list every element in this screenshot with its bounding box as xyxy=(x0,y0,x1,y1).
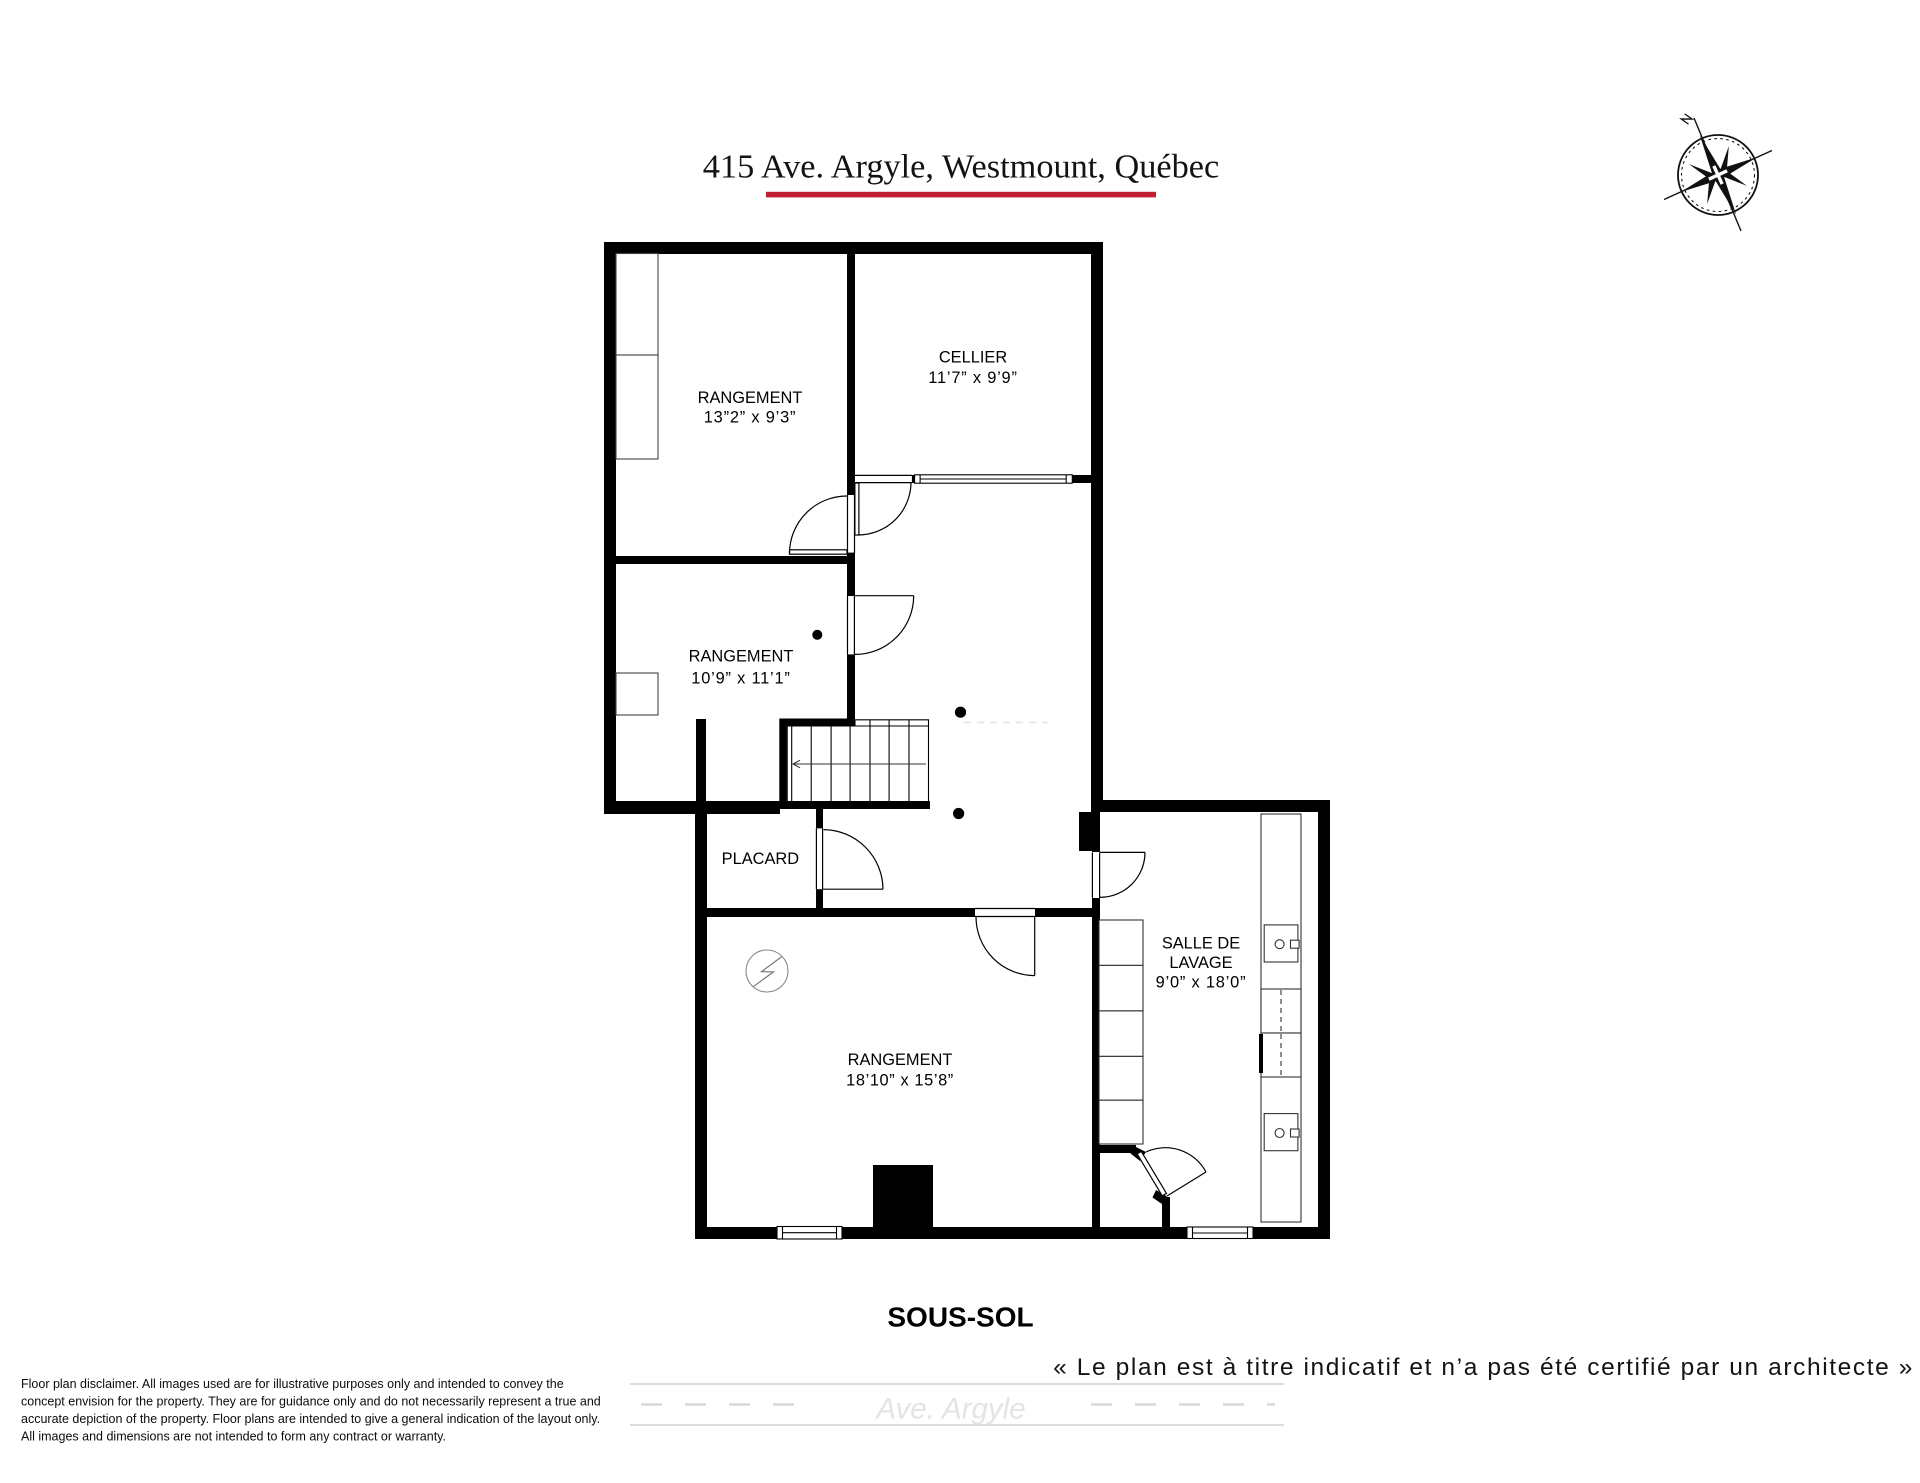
svg-text:All images and dimensions are: All images and dimensions are not intend… xyxy=(21,1430,446,1444)
svg-text:9’0” x 18’0”: 9’0” x 18’0” xyxy=(1156,974,1247,992)
svg-text:18’10” x 15’8”: 18’10” x 15’8” xyxy=(846,1072,954,1090)
svg-text:13”2” x 9’3”: 13”2” x 9’3” xyxy=(704,409,797,427)
svg-text:RANGEMENT: RANGEMENT xyxy=(848,1051,953,1069)
svg-text:415 Ave. Argyle, Westmount, Qu: 415 Ave. Argyle, Westmount, Québec xyxy=(703,148,1219,186)
svg-text:concept envision for the prope: concept envision for the property. They … xyxy=(21,1395,601,1409)
svg-text:« Le plan est à titre indicati: « Le plan est à titre indicatif et n’a p… xyxy=(1053,1354,1914,1381)
svg-text:RANGEMENT: RANGEMENT xyxy=(689,648,794,666)
svg-text:LAVAGE: LAVAGE xyxy=(1169,954,1232,972)
svg-text:accurate depiction of the prop: accurate depiction of the property. Floo… xyxy=(21,1412,600,1426)
svg-text:PLACARD: PLACARD xyxy=(722,850,800,868)
svg-text:CELLIER: CELLIER xyxy=(939,349,1007,367)
svg-text:RANGEMENT: RANGEMENT xyxy=(698,389,803,407)
svg-text:Floor plan disclaimer. All ima: Floor plan disclaimer. All images used a… xyxy=(21,1377,564,1391)
svg-text:SALLE DE: SALLE DE xyxy=(1162,935,1240,953)
svg-text:SOUS-SOL: SOUS-SOL xyxy=(887,1302,1033,1333)
svg-text:Ave. Argyle: Ave. Argyle xyxy=(874,1393,1025,1426)
svg-text:10’9” x 11’1”: 10’9” x 11’1” xyxy=(691,670,790,688)
svg-text:11’7” x 9’9”: 11’7” x 9’9” xyxy=(928,369,1017,387)
